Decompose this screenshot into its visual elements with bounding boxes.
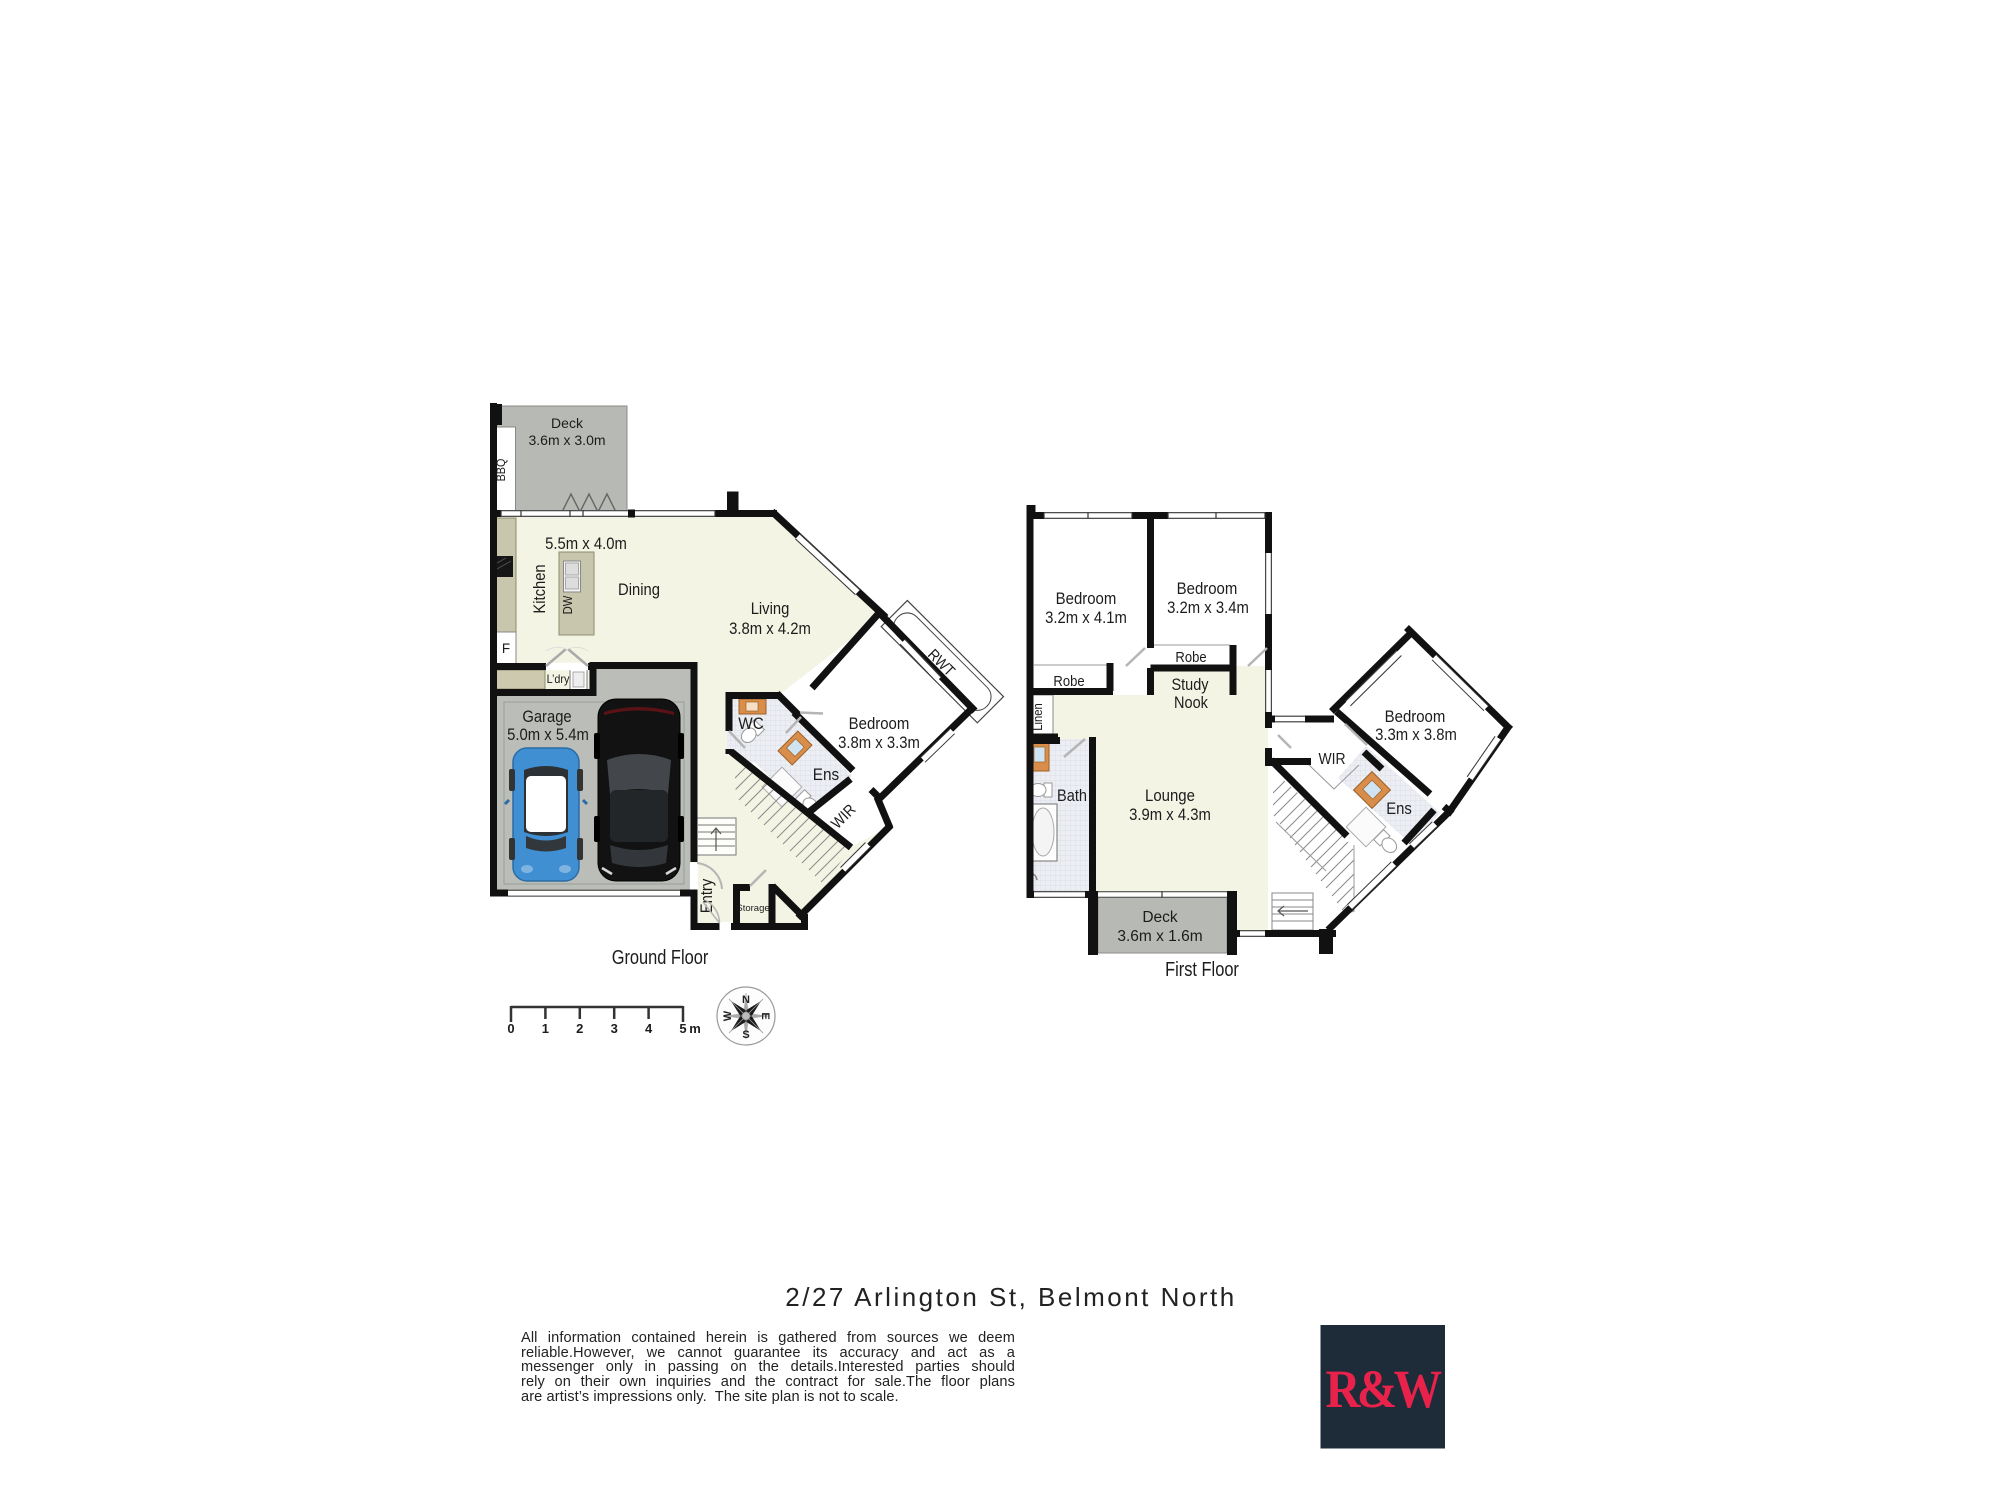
svg-text:Bedroom: Bedroom [1056,589,1117,608]
svg-text:Dining: Dining [618,580,660,599]
svg-text:Living: Living [751,599,790,618]
svg-text:3.2m x 3.4m: 3.2m x 3.4m [1167,599,1249,617]
svg-text:Nook: Nook [1174,694,1209,712]
svg-text:First Floor: First Floor [1165,958,1239,981]
svg-text:Ens: Ens [1386,800,1412,818]
svg-text:3.2m x 4.1m: 3.2m x 4.1m [1045,609,1127,627]
svg-text:Kitchen: Kitchen [530,564,549,613]
svg-text:S: S [742,1029,749,1041]
svg-text:Bath: Bath [1057,787,1087,805]
svg-text:Entry: Entry [697,878,716,913]
svg-text:m: m [689,1021,701,1036]
svg-text:1: 1 [542,1021,549,1036]
svg-text:F: F [502,641,510,656]
svg-text:Garage: Garage [522,707,571,726]
svg-text:N: N [742,994,750,1006]
svg-text:Robe: Robe [1053,674,1084,690]
svg-text:3.8m x 3.3m: 3.8m x 3.3m [838,734,920,752]
svg-text:3.6m x 1.6m: 3.6m x 1.6m [1117,928,1202,945]
svg-text:Deck: Deck [551,415,584,431]
svg-text:WC: WC [738,714,764,733]
svg-text:0: 0 [507,1021,514,1036]
svg-text:3.3m x 3.8m: 3.3m x 3.8m [1375,726,1457,744]
svg-text:2/27 Arlington St, Belmont Nor: 2/27 Arlington St, Belmont North [785,1282,1236,1312]
svg-text:R&W: R&W [1326,1359,1443,1419]
svg-text:5.5m x 4.0m: 5.5m x 4.0m [545,535,627,553]
svg-text:DW: DW [561,595,575,614]
svg-text:L’dry: L’dry [547,672,570,686]
svg-text:3.8m x 4.2m: 3.8m x 4.2m [729,620,811,638]
svg-text:Robe: Robe [1175,650,1206,666]
svg-text:Ens: Ens [813,765,839,784]
svg-text:5.0m x 5.4m: 5.0m x 5.4m [507,726,589,744]
svg-text:WIR: WIR [1318,751,1345,768]
svg-text:E: E [759,1012,771,1019]
svg-text:5: 5 [679,1021,686,1036]
svg-text:Ground Floor: Ground Floor [612,946,709,969]
svg-text:Bedroom: Bedroom [1385,707,1446,726]
svg-text:2: 2 [576,1021,583,1036]
svg-text:Storage: Storage [736,903,769,914]
svg-text:Lounge: Lounge [1145,786,1195,805]
svg-text:4: 4 [645,1021,653,1036]
svg-text:3: 3 [611,1021,618,1036]
svg-text:Bedroom: Bedroom [1177,579,1238,598]
svg-text:3.9m x 4.3m: 3.9m x 4.3m [1129,806,1211,824]
svg-text:W: W [722,1010,734,1021]
svg-text:3.6m x 3.0m: 3.6m x 3.0m [528,432,605,448]
svg-text:Study: Study [1171,676,1209,694]
svg-text:Deck: Deck [1142,909,1178,926]
svg-text:Bedroom: Bedroom [849,714,910,733]
